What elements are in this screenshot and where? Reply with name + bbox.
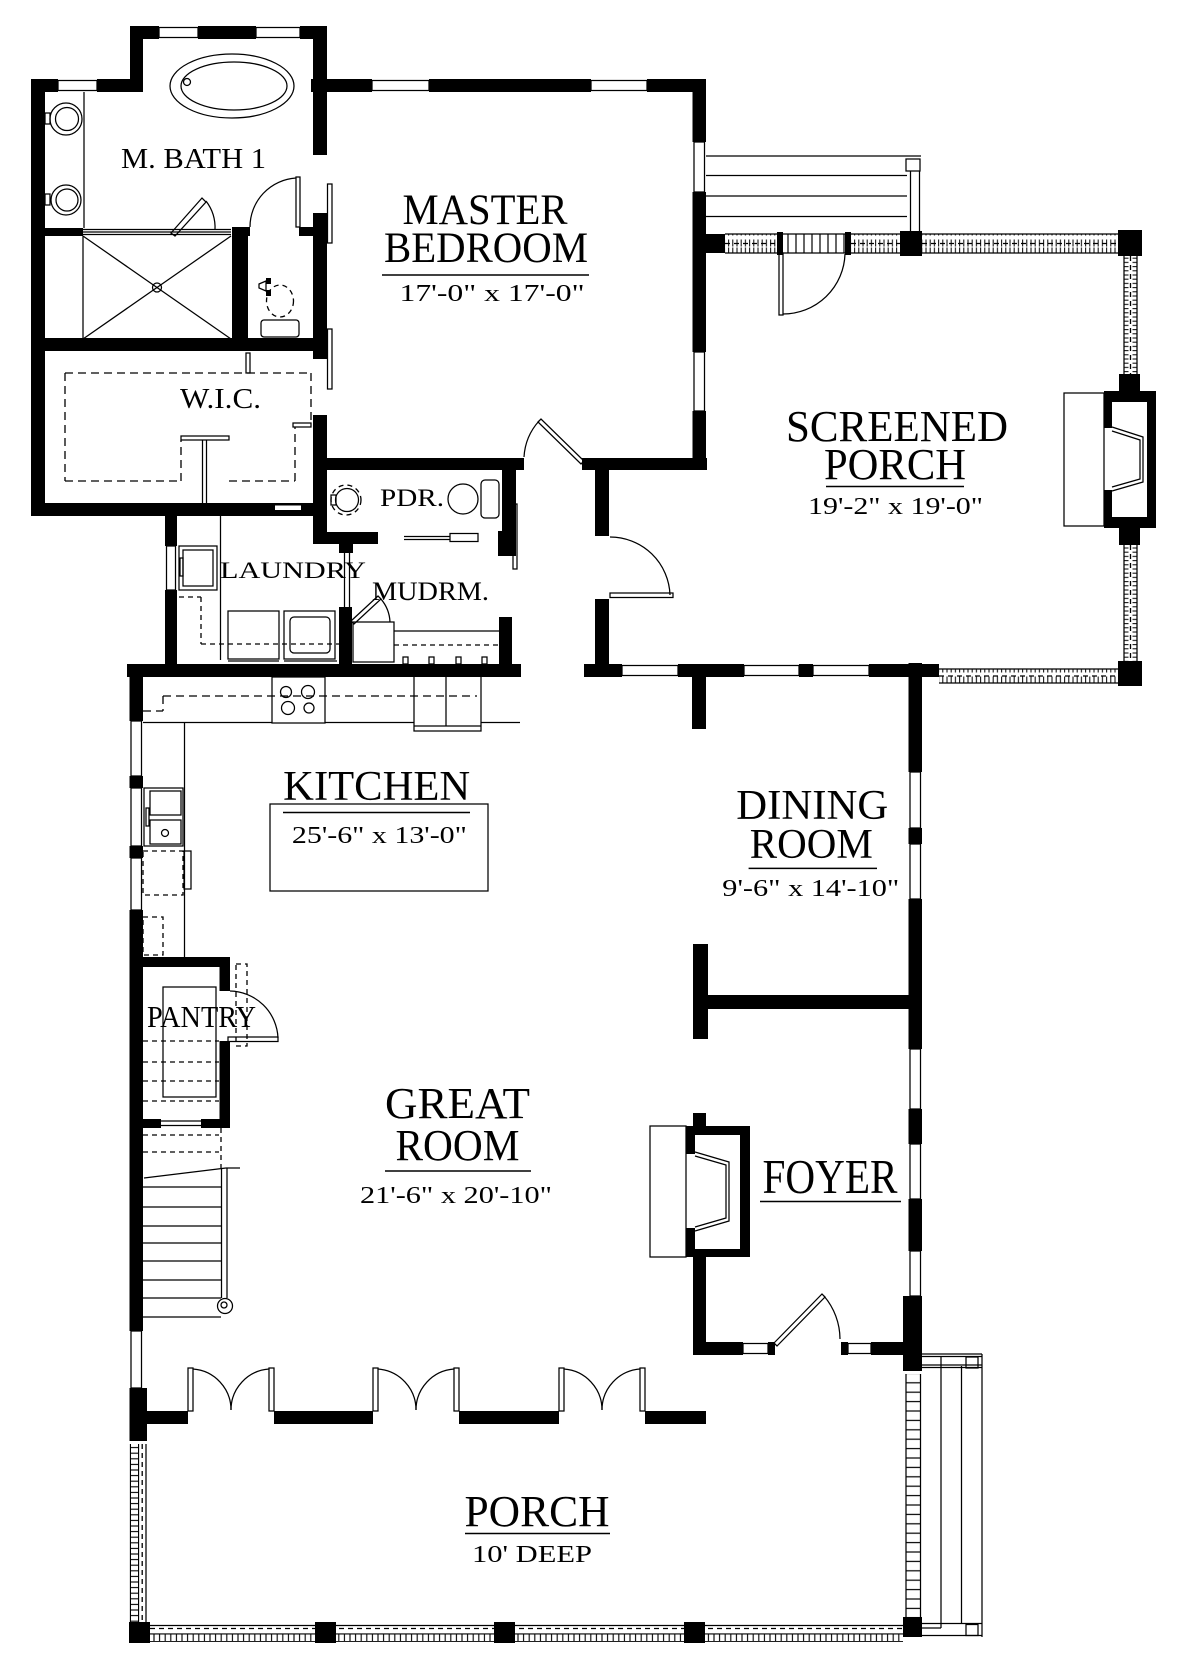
- svg-text:25'-6" x 13'-0": 25'-6" x 13'-0": [292, 822, 467, 849]
- svg-text:PORCH: PORCH: [465, 1487, 610, 1536]
- svg-text:ROOM: ROOM: [750, 822, 873, 868]
- svg-text:9'-6" x 14'-10": 9'-6" x 14'-10": [722, 875, 899, 902]
- svg-text:FOYER: FOYER: [763, 1149, 898, 1204]
- svg-text:10' DEEP: 10' DEEP: [472, 1541, 592, 1568]
- svg-text:KITCHEN: KITCHEN: [283, 764, 470, 810]
- svg-text:PDR.: PDR.: [380, 485, 444, 512]
- svg-text:17'-0" x 17'-0": 17'-0" x 17'-0": [400, 280, 585, 307]
- svg-text:ROOM: ROOM: [396, 1121, 520, 1170]
- svg-text:BEDROOM: BEDROOM: [384, 225, 588, 272]
- svg-text:19'-2" x 19'-0": 19'-2" x 19'-0": [808, 493, 983, 520]
- svg-text:21'-6" x 20'-10": 21'-6" x 20'-10": [360, 1182, 552, 1209]
- svg-text:MUDRM.: MUDRM.: [372, 577, 489, 606]
- svg-text:W.I.C.: W.I.C.: [180, 383, 261, 415]
- svg-text:PORCH: PORCH: [824, 440, 966, 489]
- svg-text:M. BATH 1: M. BATH 1: [121, 143, 266, 175]
- svg-text:PANTRY: PANTRY: [147, 999, 256, 1034]
